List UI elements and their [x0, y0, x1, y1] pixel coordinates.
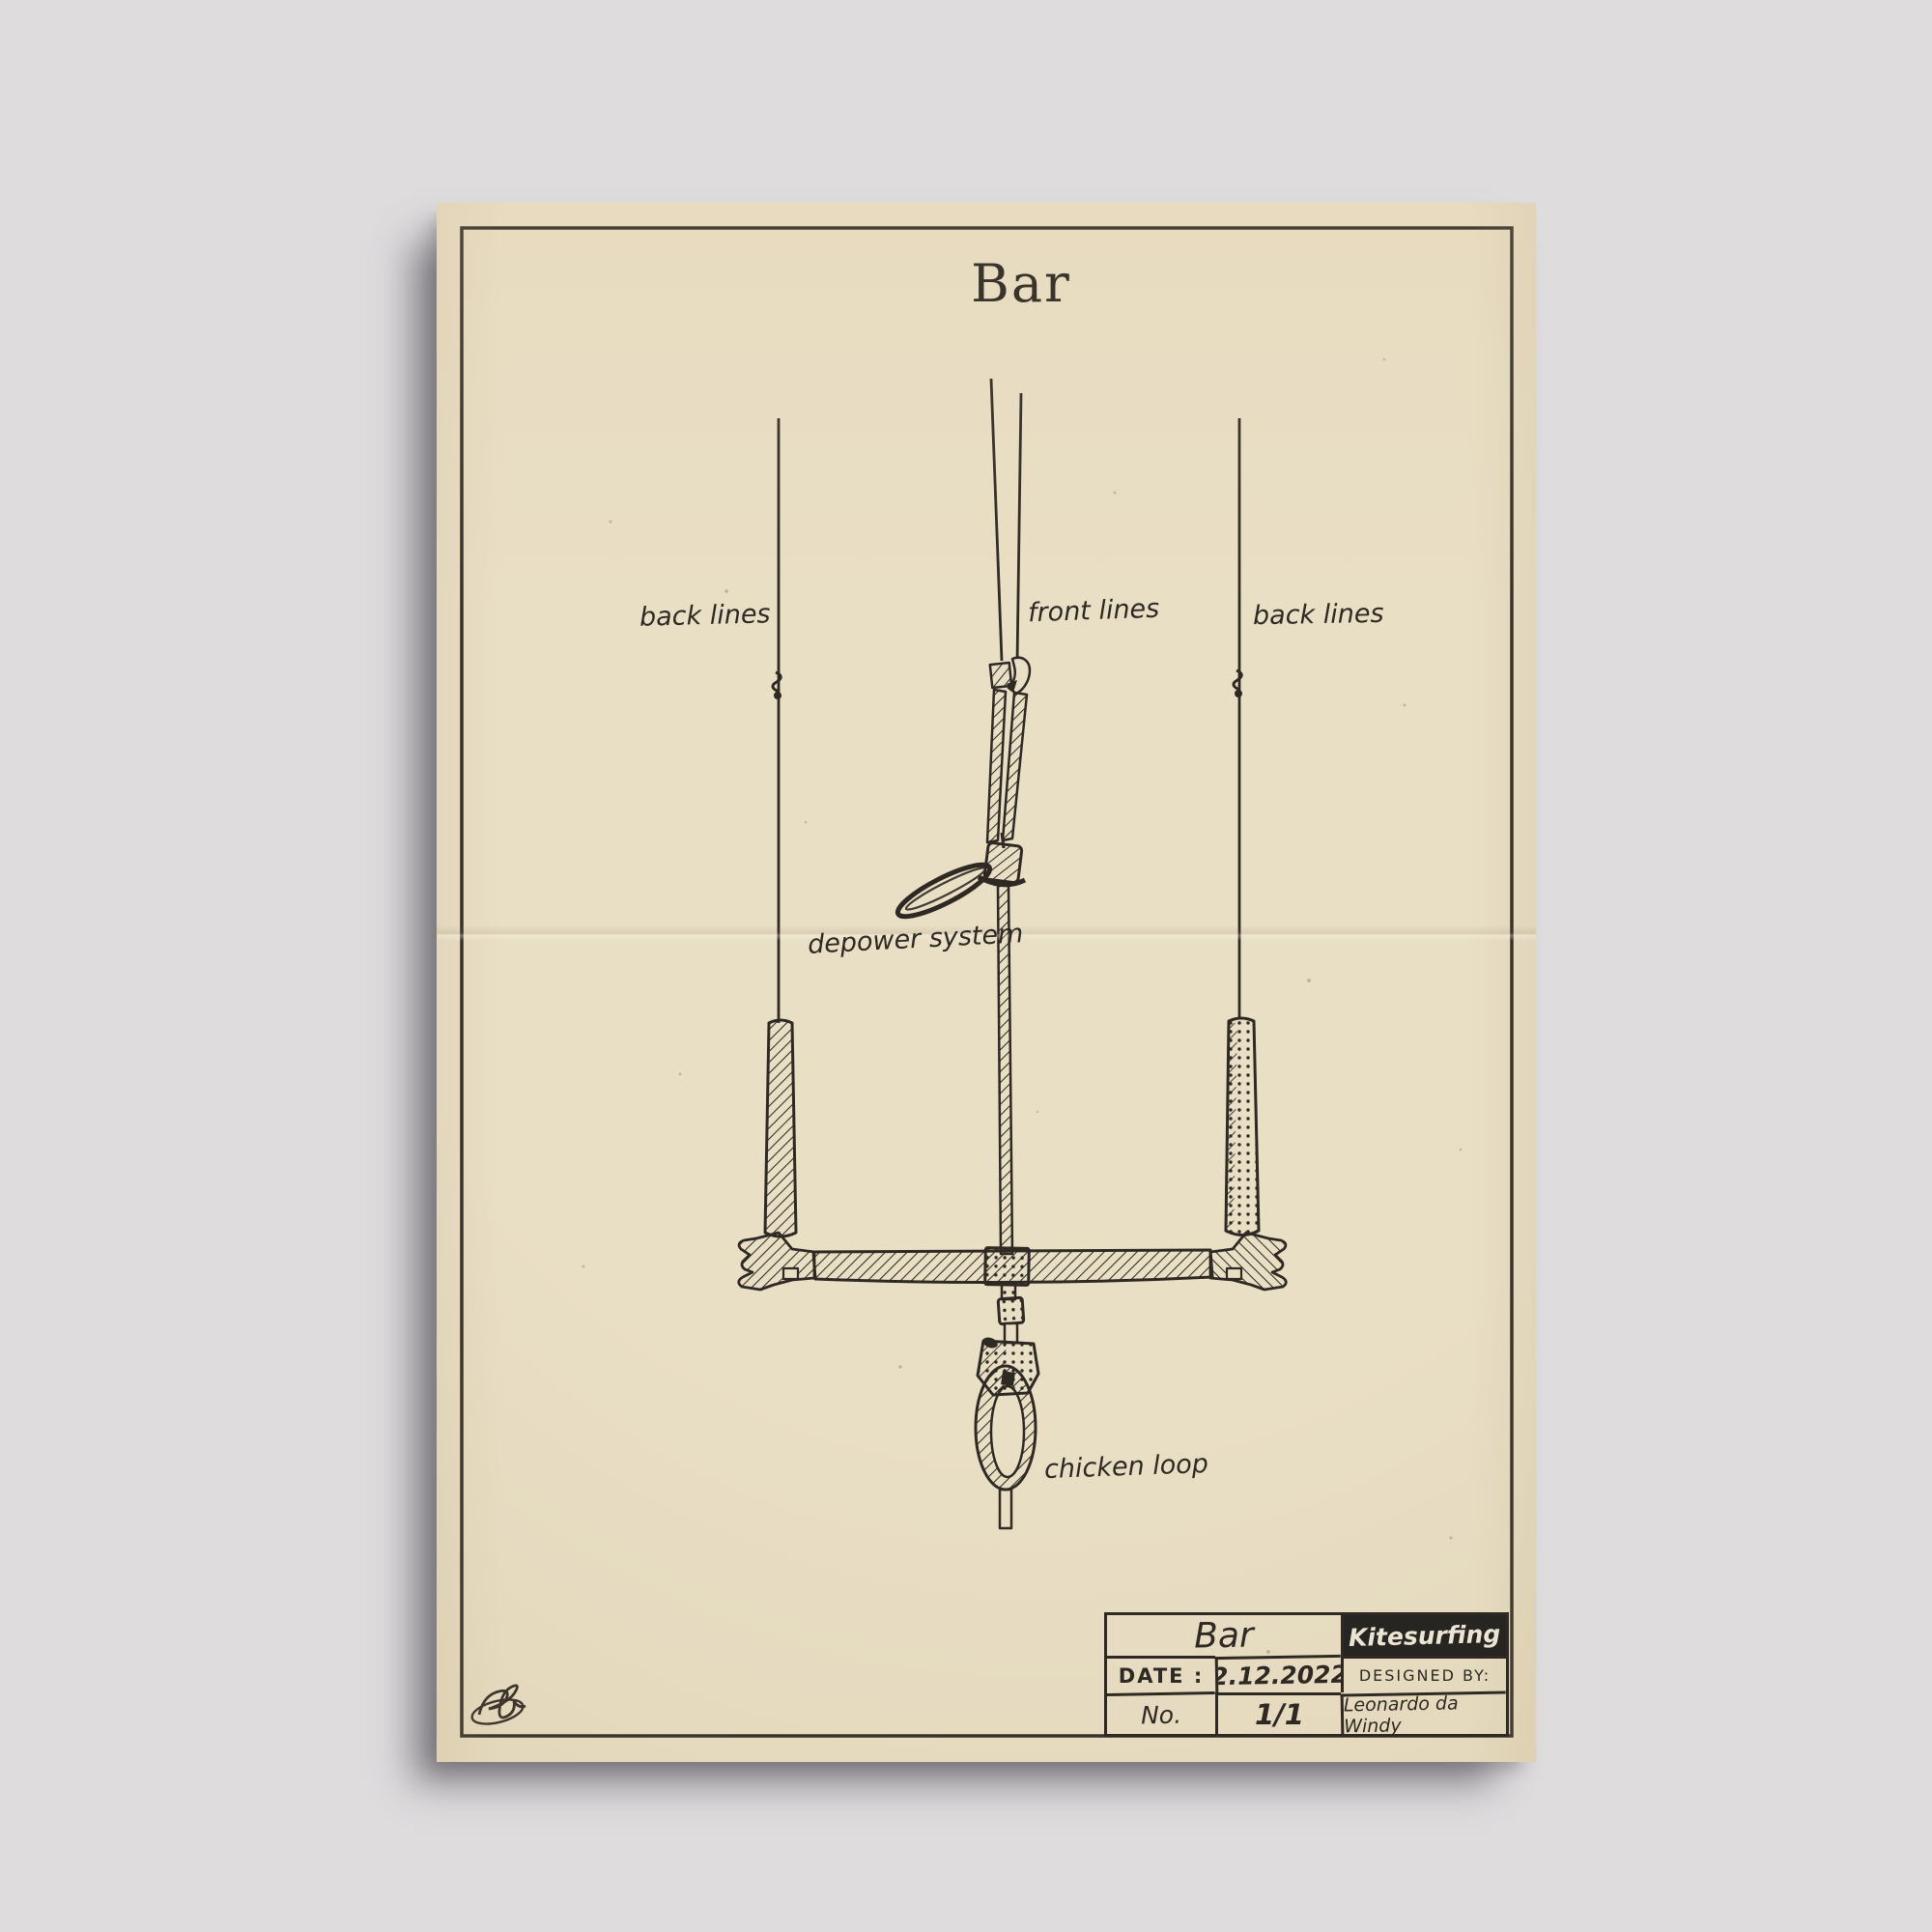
title-block-name: Bar	[1107, 1613, 1342, 1658]
back-line-right	[1234, 418, 1242, 1019]
poster: Bar back lines front lines back lines de…	[437, 203, 1536, 1762]
title-block-category: Kitesurfing	[1341, 1615, 1506, 1656]
label-back-lines-right: back lines	[1253, 599, 1384, 631]
back-line-left	[773, 418, 781, 1023]
title-block-designed-by-label: DESIGNED BY:	[1341, 1656, 1506, 1692]
border-frame	[462, 228, 1512, 1736]
chicken-loop-assembly	[976, 1285, 1038, 1528]
signature-icon	[469, 1686, 526, 1728]
front-lines	[991, 379, 1021, 663]
grip-right	[1226, 1018, 1259, 1236]
scene: Bar back lines front lines back lines de…	[0, 0, 1932, 1932]
title-block-designer-name: Leonardo da Windy	[1341, 1691, 1507, 1736]
title-block-date-value: 2.12.2022	[1215, 1655, 1342, 1693]
label-front-lines: front lines	[1028, 594, 1160, 629]
grip-left	[765, 1020, 796, 1236]
title-block-number-label: No.	[1107, 1691, 1216, 1735]
title-block-date-label: DATE :	[1107, 1656, 1215, 1692]
label-back-lines-left: back lines	[639, 599, 771, 633]
title-block-category-text: Kitesurfing	[1349, 1619, 1501, 1651]
kite-bar-diagram	[437, 203, 1536, 1762]
label-chicken-loop: chicken loop	[1044, 1449, 1209, 1485]
title-block-number-value: 1/1	[1215, 1692, 1341, 1734]
poster-title: Bar	[471, 253, 1571, 314]
depower-assembly	[893, 658, 1030, 1254]
title-block: Bar Kitesurfing DATE : 2.12.2022 DESIGNE…	[1104, 1612, 1509, 1737]
